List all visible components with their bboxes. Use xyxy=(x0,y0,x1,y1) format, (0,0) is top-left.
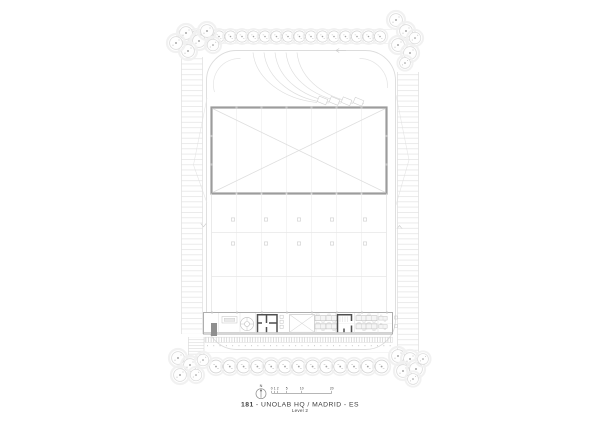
tree-cluster-top-right xyxy=(387,11,423,71)
scale-tick-label: 2 xyxy=(277,387,279,391)
elevator-core xyxy=(211,323,217,336)
scale-tick-label: 1 xyxy=(274,387,276,391)
tree-cluster-top-left xyxy=(167,22,221,60)
terrace-hatch xyxy=(205,337,393,345)
level-label: Level 2 xyxy=(292,408,308,413)
north-arrow: N xyxy=(256,384,266,399)
scale-tick-label: 10 xyxy=(300,387,304,391)
north-label: N xyxy=(260,384,263,388)
road-loop xyxy=(194,49,410,353)
architectural-sheet: N 0 1 2 5 10 20 181- UNOLAB HQ / MADRID … xyxy=(0,0,600,424)
tree-cluster-bottom-right xyxy=(389,347,431,387)
entry-paths xyxy=(253,53,364,107)
trees-bottom-row xyxy=(207,358,390,375)
project-number: 181 xyxy=(241,402,254,409)
ramp-markers xyxy=(317,96,364,106)
title-block: 181- UNOLAB HQ / MADRID - ES Level 2 xyxy=(241,402,359,414)
scale-tick-label: 20 xyxy=(330,387,334,391)
level-plan-strip xyxy=(204,312,398,336)
upper-volume xyxy=(210,106,387,194)
structural-columns xyxy=(231,218,366,245)
road-arrow-icon xyxy=(336,49,346,53)
parking-right xyxy=(398,72,419,352)
scale-tick-label: 5 xyxy=(286,387,288,391)
floor-plan-drawing: N 0 1 2 5 10 20 181- UNOLAB HQ / MADRID … xyxy=(0,0,600,424)
scale-bar: 0 1 2 5 10 20 xyxy=(271,387,334,394)
courtyard-grid xyxy=(212,194,387,313)
north-needle-icon xyxy=(260,389,262,391)
scale-tick-label: 0 xyxy=(271,387,273,391)
parking-left xyxy=(182,57,203,334)
